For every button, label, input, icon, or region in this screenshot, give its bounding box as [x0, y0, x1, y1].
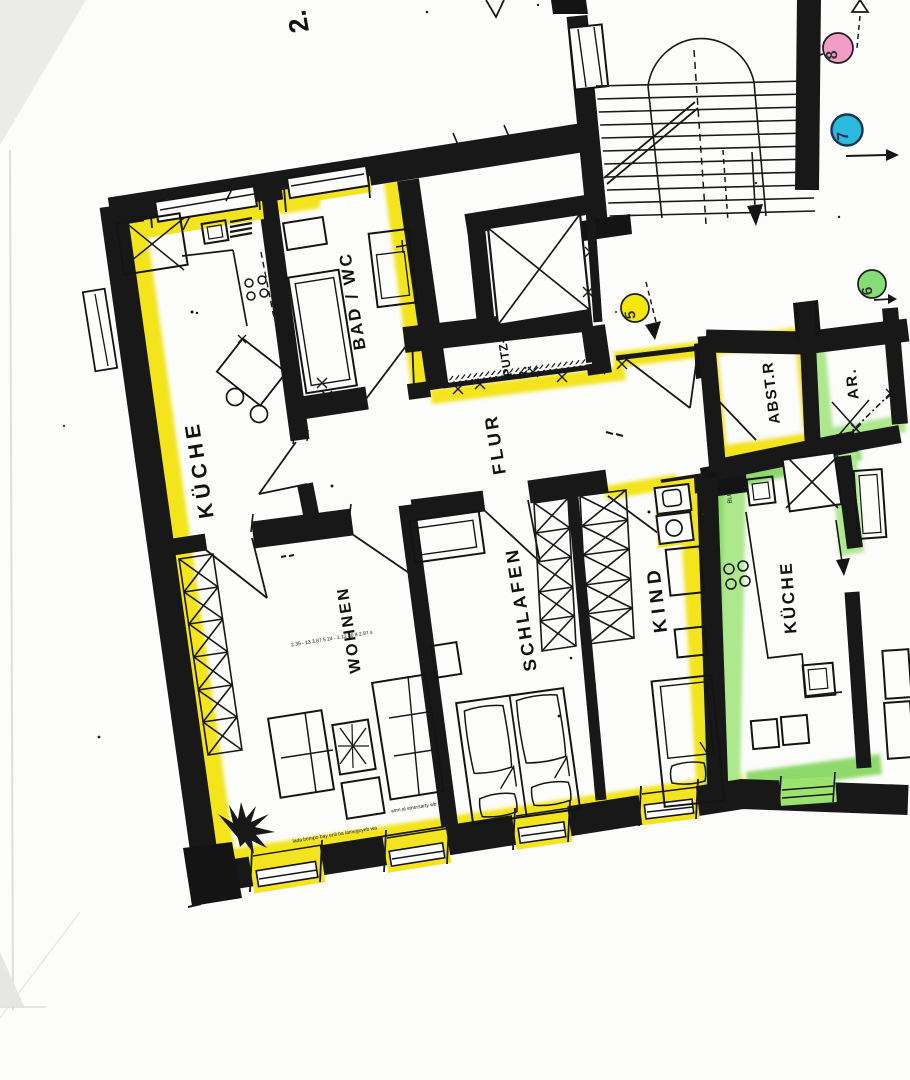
svg-text:R.: R.: [515, 365, 531, 380]
svg-text:AR.: AR.: [842, 367, 862, 400]
svg-text:8: 8: [824, 49, 842, 61]
svg-text:6: 6: [859, 285, 877, 296]
svg-text:5: 5: [622, 309, 640, 320]
svg-text:7: 7: [835, 130, 853, 142]
